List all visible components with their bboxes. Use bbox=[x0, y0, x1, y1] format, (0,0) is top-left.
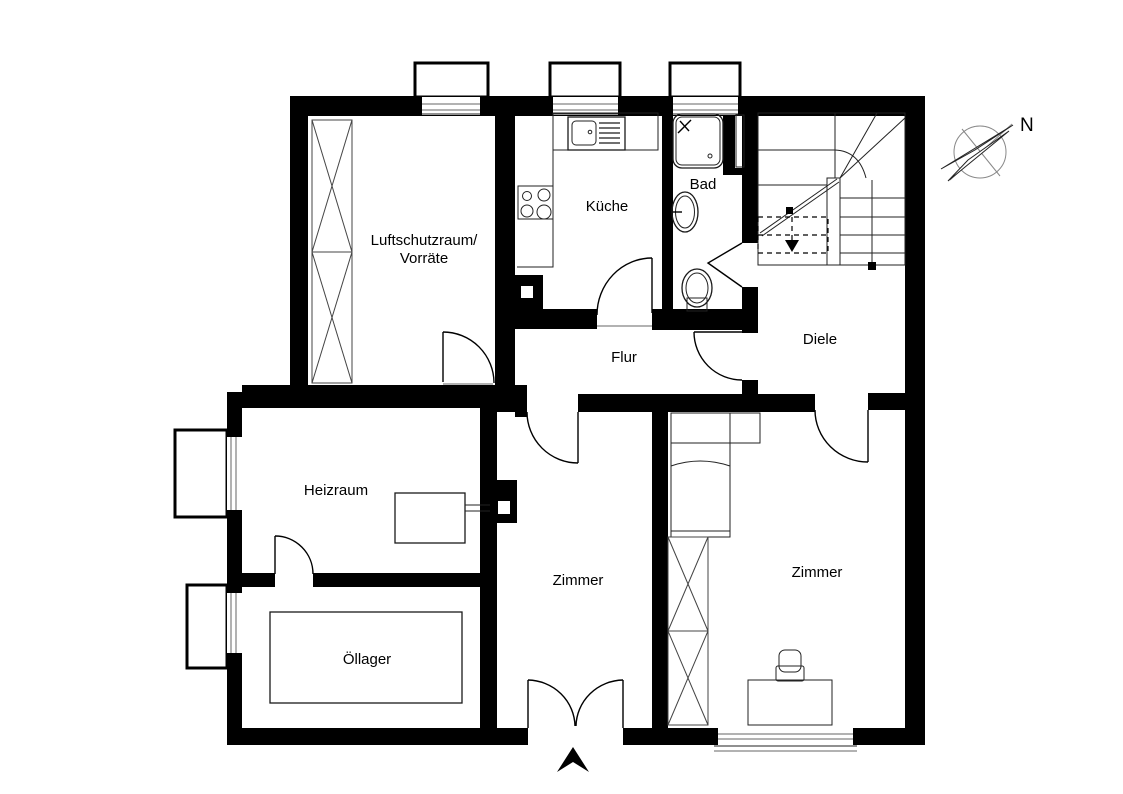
floor-plan: N Luftschutzraum/ Vorräte Küche Bad Flur… bbox=[0, 0, 1123, 794]
room-label-luftschutzraum-1: Luftschutzraum/ bbox=[371, 232, 479, 249]
storage-shelf bbox=[312, 120, 352, 383]
door-zimmer-right bbox=[815, 410, 868, 462]
room-labels: Luftschutzraum/ Vorräte Küche Bad Flur D… bbox=[304, 176, 843, 668]
door-zimmer-left bbox=[527, 412, 578, 463]
room-label-heizraum: Heizraum bbox=[304, 482, 368, 499]
chimney-kueche bbox=[515, 275, 543, 312]
bed bbox=[671, 413, 760, 537]
door-heiz-oellager bbox=[275, 536, 313, 574]
wall-bad-shaft-bottom bbox=[723, 168, 758, 175]
desk bbox=[748, 680, 832, 725]
room-label-oellager: Öllager bbox=[343, 650, 391, 668]
wall-bad-shaft-stub bbox=[723, 114, 735, 175]
room-label-bad: Bad bbox=[690, 176, 717, 193]
watermark: McGrundriss bbox=[908, 665, 918, 718]
shower bbox=[673, 114, 723, 168]
compass: N bbox=[941, 115, 1034, 181]
stair-handrail bbox=[868, 180, 876, 270]
stair-arrow-icon bbox=[785, 240, 799, 252]
door-flur-diele bbox=[694, 332, 742, 380]
room-label-diele: Diele bbox=[803, 331, 837, 348]
kitchen-fixtures bbox=[517, 113, 658, 267]
wall-diele-south-east bbox=[868, 393, 905, 410]
window-heizraum bbox=[227, 437, 242, 510]
staircase bbox=[758, 113, 905, 270]
wall-luft-bottom bbox=[242, 385, 515, 408]
window-kueche bbox=[553, 97, 618, 115]
light-well-oellager bbox=[187, 585, 227, 668]
kitchen-counter-top bbox=[553, 113, 658, 150]
door-kueche bbox=[597, 258, 652, 315]
entrance-arrow-icon bbox=[557, 747, 589, 772]
light-well-heizraum bbox=[175, 430, 227, 517]
window-oellager bbox=[227, 593, 242, 653]
opening-entrance bbox=[528, 728, 623, 745]
room-label-luftschutzraum-2: Vorräte bbox=[400, 250, 448, 267]
stair-dashed-continuation bbox=[758, 217, 828, 253]
wall-bad-stair-b bbox=[742, 287, 758, 333]
wall-zimmer-divider bbox=[652, 412, 668, 728]
wall-kueche-bad bbox=[662, 96, 673, 329]
boiler bbox=[395, 493, 490, 543]
stove bbox=[518, 186, 553, 219]
chimney-heizraum bbox=[490, 480, 517, 523]
compass-needle-icon bbox=[941, 125, 1013, 169]
opening-heiz-oel-door bbox=[275, 573, 313, 587]
compass-north-label: N bbox=[1020, 115, 1034, 136]
window-bad bbox=[673, 97, 738, 115]
openings bbox=[275, 309, 652, 745]
room-label-zimmer-left: Zimmer bbox=[553, 572, 604, 589]
door-bad bbox=[708, 243, 742, 287]
bathroom-sink bbox=[672, 192, 698, 232]
wardrobe bbox=[668, 537, 708, 725]
kitchen-counter-left bbox=[517, 150, 553, 267]
room-label-flur: Flur bbox=[611, 349, 637, 366]
kitchen-sink bbox=[568, 117, 625, 150]
toilet bbox=[682, 269, 712, 311]
wall-right bbox=[905, 96, 925, 745]
wall-flur-south-mid bbox=[578, 394, 815, 412]
compass-needle-secondary-icon bbox=[948, 131, 1009, 181]
window-zimmer-bottom bbox=[714, 728, 857, 751]
chair bbox=[776, 650, 804, 681]
entrance-double-door bbox=[528, 680, 623, 772]
door-luftschutzraum bbox=[443, 332, 494, 383]
wall-luft-left bbox=[290, 96, 308, 397]
shower-head-icon bbox=[678, 120, 691, 133]
sink-drainer-icon bbox=[599, 123, 620, 143]
wall-zimmer-west bbox=[480, 394, 497, 745]
light-well-kueche bbox=[550, 63, 620, 97]
window-luftschutzraum bbox=[422, 97, 480, 115]
room-label-zimmer-right: Zimmer bbox=[792, 564, 843, 581]
wall-luft-kueche bbox=[495, 96, 515, 408]
light-well-bad bbox=[670, 63, 740, 97]
walls bbox=[227, 96, 925, 745]
room-label-kueche: Küche bbox=[586, 198, 629, 215]
light-well-luftschutzraum bbox=[415, 63, 488, 97]
